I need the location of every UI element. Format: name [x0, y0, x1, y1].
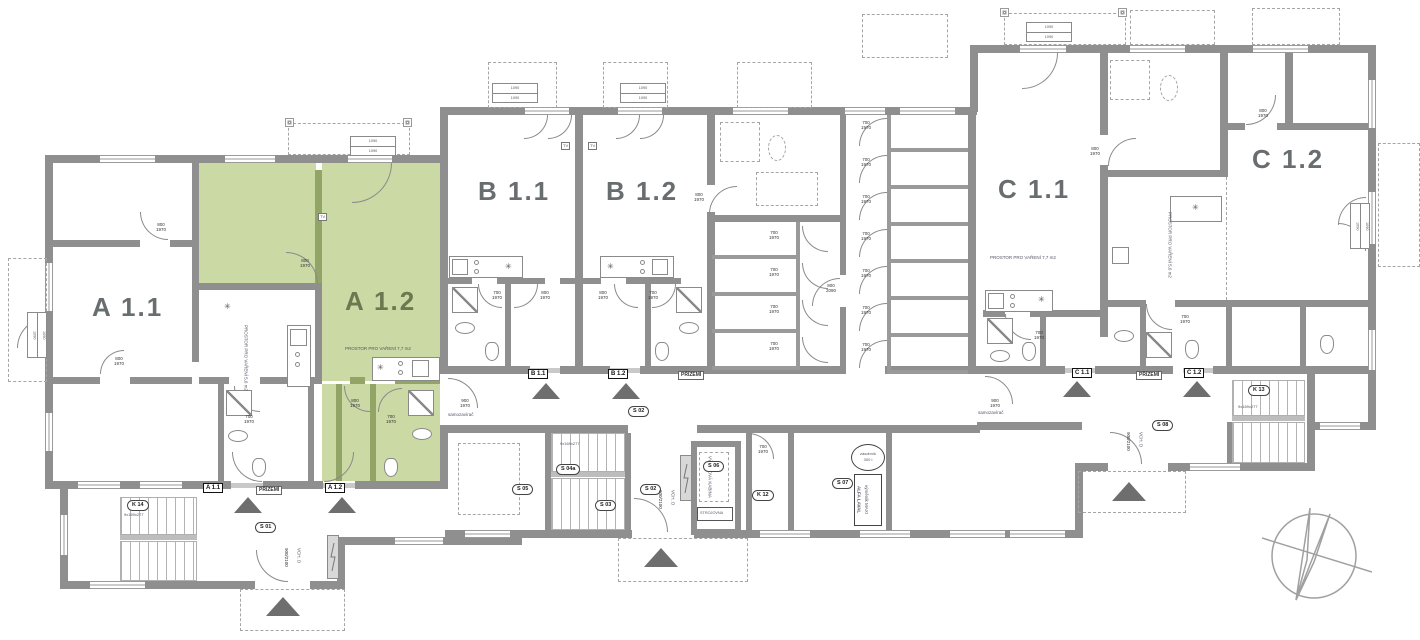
window-tag-box: 1090 1090 — [1026, 22, 1072, 42]
door-dim: 7001970 — [852, 231, 880, 241]
wall — [735, 441, 741, 535]
window — [395, 537, 443, 545]
storage-door-arc — [802, 300, 828, 326]
wall — [697, 425, 980, 433]
entrance-arrow-icon — [234, 497, 262, 513]
window-tag: 1090 — [1027, 23, 1071, 33]
toilet — [1022, 342, 1036, 361]
shower — [226, 390, 252, 416]
dim-h: 1970 — [852, 347, 880, 352]
dim-h: 1970 — [292, 263, 318, 268]
entry-door-dim: 900/2100 — [284, 548, 289, 567]
entrance-tag-b11: B 1.1 — [528, 369, 548, 379]
dim-h: 2100 — [658, 499, 663, 509]
door-dim: 8001970 — [532, 290, 558, 300]
entry-door-note: VCH. D — [296, 548, 302, 578]
staircase-landing — [120, 535, 197, 540]
wall — [440, 107, 448, 374]
staircase-k13-flight — [1232, 380, 1305, 416]
tv-outlet-label: TV — [588, 142, 597, 150]
equipment-outline — [1160, 75, 1178, 101]
stove-icon: ✳ — [607, 263, 614, 271]
window — [1368, 330, 1376, 370]
wall — [1228, 123, 1245, 130]
door-dim: 8001970 — [292, 258, 318, 268]
window-tag: 1090 — [1361, 204, 1370, 248]
window — [45, 413, 53, 451]
kitchen-sink — [1112, 247, 1129, 264]
hob-burner — [474, 269, 479, 274]
dim-h: 1970 — [236, 419, 262, 424]
wall — [350, 377, 365, 384]
window — [950, 530, 1005, 538]
wall — [788, 433, 794, 530]
door-arc — [709, 186, 737, 214]
window — [60, 515, 68, 555]
door-dim: 7001970 — [760, 341, 788, 351]
kitchen-sink — [988, 293, 1004, 309]
dim-w: 900 — [658, 490, 663, 498]
wall — [315, 283, 322, 384]
cooking-area-note: PROSTOR PRO VAŘENÍ 5,6 m2 — [1167, 212, 1173, 272]
entry-door-note: VCH. D — [1138, 432, 1144, 462]
door-dim: 8001970 — [1082, 146, 1108, 156]
cooking-area-note: PROSTOR PRO VAŘENÍ 5,6 m2 — [243, 325, 249, 385]
shower — [676, 287, 702, 313]
window — [900, 107, 955, 115]
window — [1368, 80, 1376, 128]
door-dim: 8001970 — [590, 290, 616, 300]
sink — [679, 322, 699, 334]
dim-h: 1970 — [452, 403, 478, 408]
wall — [370, 384, 376, 481]
window-tag: 1090 — [1027, 33, 1071, 42]
door-dim: 7001970 — [1172, 314, 1198, 324]
entry-door-dim: 900/2100 — [1126, 432, 1131, 451]
door-dim: 7001970 — [852, 157, 880, 167]
dim-w: 900 — [284, 548, 289, 556]
window-tag-box: 1090 1090 — [492, 83, 538, 103]
self-closer-note: samozavírač — [978, 410, 1004, 416]
window — [140, 481, 182, 489]
entrance-arrow-icon — [328, 497, 356, 513]
dim-h: 1970 — [1082, 151, 1108, 156]
dim-h: 1970 — [1026, 335, 1052, 340]
wall — [199, 377, 229, 384]
wall — [1213, 366, 1376, 374]
balcony-anchor — [1118, 8, 1127, 17]
window-tag-box: 1090 1090 — [1350, 203, 1370, 249]
wall — [691, 529, 741, 535]
entry-door-dim: 900/2100 — [658, 490, 663, 509]
dim-h: 2100 — [284, 557, 289, 567]
wall — [1100, 165, 1108, 337]
tv-outlet-label: TV — [561, 142, 570, 150]
wall — [970, 45, 978, 112]
window — [1320, 422, 1360, 430]
wall — [53, 240, 140, 247]
floor-tag: PŘÍZEMÍ — [678, 371, 704, 380]
toilet — [1185, 340, 1199, 359]
cooking-area-note: PROSTOR PRO VAŘENÍ 7,7 m2 — [345, 346, 411, 352]
dim-h: 1970 — [148, 227, 174, 232]
exchanger-box: ALFA LAVAL výměník MAXI — [854, 474, 882, 526]
balcony-outline — [1252, 8, 1340, 45]
entrance-arrow-icon — [1063, 381, 1091, 397]
door-dim: 8002090 — [818, 283, 844, 293]
entrance-tag-c11: C 1.1 — [1072, 368, 1092, 378]
entrance-arrow-icon — [612, 383, 640, 399]
wall — [53, 377, 100, 384]
cooking-area-note: PROSTOR PRO VAŘENÍ 7,7 m2 — [990, 255, 1056, 261]
door-dim: 8001970 — [106, 356, 132, 366]
door-dim: 7001970 — [236, 414, 262, 424]
dim-h: 1970 — [852, 125, 880, 130]
french-door — [348, 155, 392, 163]
dim-h: 1970 — [852, 162, 880, 167]
wall — [715, 215, 840, 222]
wall — [707, 115, 715, 185]
window-tag: 1090 — [1351, 204, 1361, 248]
room-code-s04a: S 04a — [556, 464, 580, 475]
window — [525, 107, 569, 115]
tv-outlet-label: TV — [318, 213, 327, 221]
tech-equipment-outline — [768, 135, 786, 161]
dim-h: 1970 — [852, 199, 880, 204]
door-dim: 7001970 — [852, 268, 880, 278]
door-dim: 7001970 — [640, 290, 666, 300]
room-code-k13: K 13 — [1248, 385, 1270, 396]
window — [78, 481, 120, 489]
hob-burner — [640, 269, 645, 274]
window — [1190, 463, 1240, 471]
floor-plan: VÝTAHOVÁ KABINA STROJOVNA — [0, 0, 1420, 640]
window-tag: 1090 — [493, 84, 537, 94]
stove-icon: ✳ — [1038, 296, 1045, 304]
wall — [308, 384, 314, 481]
staircase-landing — [1232, 416, 1305, 421]
wall — [1300, 300, 1306, 366]
tank-line2: 300 l — [852, 457, 884, 463]
shower — [1146, 332, 1172, 358]
window — [733, 107, 788, 115]
window-tag: 1090 — [621, 94, 665, 103]
exchanger-line1: ALFA LAVAL — [856, 486, 862, 513]
wall — [447, 278, 472, 284]
balcony-anchor — [1000, 8, 1009, 17]
storage-cells-block — [887, 115, 968, 374]
canopy-outline — [618, 538, 748, 582]
tech-equipment-outline — [720, 122, 760, 162]
door-dim: 7001970 — [852, 194, 880, 204]
dim-h: 1970 — [590, 295, 616, 300]
door-dim: 8001970 — [148, 222, 174, 232]
toilet — [655, 342, 669, 361]
stair-spec-note: 9x169x277 — [560, 441, 580, 447]
wall — [625, 433, 631, 537]
stove-icon: ✳ — [224, 303, 231, 311]
wall — [170, 240, 193, 247]
sink — [1114, 330, 1134, 342]
door-dim: 7001970 — [1026, 330, 1052, 340]
sink — [228, 430, 248, 442]
kitchen-sink — [412, 360, 429, 377]
entrance-arrow-icon — [644, 548, 678, 567]
kitchen-sink — [290, 329, 307, 346]
toilet — [485, 342, 499, 361]
window-tag-box: 1090 1090 — [620, 83, 666, 103]
open-plan-divider — [1226, 177, 1227, 300]
entrance-tag-a12: A 1.2 — [325, 483, 345, 493]
sink — [412, 428, 432, 440]
dim-h: 1970 — [760, 235, 788, 240]
electrical-panel — [327, 535, 339, 579]
wall — [130, 377, 192, 384]
exchanger-line2: výměník MAXI — [864, 485, 870, 514]
dim-h: 1970 — [106, 361, 132, 366]
wall — [968, 112, 976, 374]
door-dim: 7001970 — [852, 305, 880, 315]
wall — [1277, 123, 1368, 130]
sink — [455, 322, 475, 334]
window — [225, 155, 275, 163]
dim-h: 1970 — [750, 449, 776, 454]
door-dim: 7001970 — [852, 120, 880, 130]
window — [1253, 45, 1308, 53]
door-dim: 9001970 — [452, 398, 478, 408]
wall — [1226, 300, 1232, 366]
balcony-anchor — [285, 118, 294, 127]
wall — [575, 115, 583, 366]
room-code-k12: K 12 — [752, 490, 774, 501]
window-tag-box: 1090 1090 — [27, 312, 47, 358]
wall — [840, 115, 846, 275]
wall — [583, 278, 601, 284]
window-tag: 1090 — [351, 137, 395, 147]
wall — [447, 366, 530, 374]
wall — [1307, 374, 1315, 471]
hob-burner — [474, 260, 479, 265]
stove-icon: ✳ — [505, 263, 512, 271]
window — [860, 530, 910, 538]
dim-h: 1970 — [640, 295, 666, 300]
wall — [1083, 463, 1108, 471]
window-tag-box: 1090 1090 — [350, 136, 396, 156]
wall — [977, 366, 1065, 374]
room-code-s08: S 08 — [1152, 420, 1173, 431]
door-dim: 9001970 — [982, 398, 1008, 408]
wall — [560, 278, 575, 284]
stair-spec-note: 9x169x277 — [1238, 404, 1258, 410]
dim-h: 1970 — [852, 273, 880, 278]
room-code-s01: S 01 — [255, 522, 276, 533]
floor-tag: PŘÍZEMÍ — [256, 486, 282, 495]
window — [465, 530, 510, 538]
dim-h: 2090 — [818, 288, 844, 293]
dim-h: 1970 — [982, 403, 1008, 408]
unit-label-a11: A 1.1 — [92, 294, 163, 320]
north-compass-icon — [1262, 498, 1372, 610]
storage-door-arc — [802, 226, 828, 252]
wall — [1100, 170, 1228, 177]
room-code-s02: S 02 — [628, 406, 649, 417]
dim-h: 1970 — [342, 403, 368, 408]
entrance-tag-c12: C 1.2 — [1184, 368, 1204, 378]
dim-h: 1970 — [760, 309, 788, 314]
wall — [199, 283, 316, 290]
window — [1130, 45, 1185, 53]
wall — [691, 441, 741, 447]
dim-h: 1970 — [760, 272, 788, 277]
elevator-cabin-outline — [699, 452, 729, 502]
shower — [408, 390, 434, 416]
dim-h: 1970 — [378, 419, 404, 424]
toilet — [252, 458, 266, 477]
door-dim: 7001970 — [852, 342, 880, 352]
staircase-k13-flight — [1232, 422, 1305, 463]
dim-h: 1970 — [686, 197, 712, 202]
window — [100, 155, 155, 163]
dim-h: 2100 — [1126, 441, 1131, 451]
floor-tag: PŘÍZEMÍ — [1136, 371, 1162, 380]
dim-h: 1970 — [1172, 319, 1198, 324]
unit-label-c11: C 1.1 — [998, 176, 1070, 202]
dim-w: 900 — [1126, 432, 1131, 440]
self-closer-note: samozavírač — [448, 412, 474, 418]
storage-door-arc — [802, 337, 828, 363]
door-dim: 7001970 — [760, 304, 788, 314]
staircase-k14-flight — [120, 541, 197, 581]
wall — [886, 433, 892, 530]
room-code-s06: S 06 — [703, 461, 724, 472]
hob-burner — [398, 361, 403, 366]
balcony-anchor — [403, 118, 412, 127]
dim-h: 1970 — [852, 236, 880, 241]
door-dim: 7001970 — [484, 290, 510, 300]
window — [845, 107, 885, 115]
hob-burner — [640, 260, 645, 265]
window — [90, 581, 145, 589]
toilet — [1320, 335, 1334, 354]
window — [760, 530, 810, 538]
tank-circle: zásobník 300 l — [851, 444, 885, 471]
room-code-s07: S 07 — [832, 478, 853, 489]
window-tag: 1090 — [621, 84, 665, 94]
window — [1010, 530, 1065, 538]
door-dim: 8001970 — [342, 398, 368, 408]
unit-label-c12: C 1.2 — [1252, 146, 1324, 172]
room-code-s03: S 03 — [595, 500, 616, 511]
balcony-outline — [1378, 143, 1420, 267]
dim-h: 1970 — [760, 346, 788, 351]
wall — [1175, 300, 1368, 307]
hob-burner — [1010, 294, 1015, 299]
sink — [990, 350, 1010, 362]
window-tag: 1090 — [351, 147, 395, 156]
window-tag: 1090 — [28, 313, 38, 357]
entrance-tag-a11: A 1.1 — [203, 483, 223, 493]
toilet — [384, 458, 398, 477]
wall — [1285, 53, 1293, 130]
wall — [1220, 53, 1228, 177]
entrance-arrow-icon — [532, 383, 560, 399]
door-dim: 8001970 — [1250, 108, 1276, 118]
balcony-outline — [737, 62, 812, 108]
window-tag: 1090 — [38, 313, 47, 357]
stove-icon: ✳ — [377, 364, 384, 372]
electrical-panel — [680, 455, 692, 501]
window-tag: 1090 — [493, 94, 537, 103]
stair-spec-note: 9x169x277 — [124, 512, 144, 518]
window — [1020, 45, 1066, 53]
balcony-outline — [862, 14, 948, 58]
wall — [355, 481, 447, 489]
hob-burner — [398, 370, 403, 375]
hob-burner — [1010, 303, 1015, 308]
entrance-arrow-icon — [1112, 482, 1146, 501]
entrance-arrow-icon — [1183, 381, 1211, 397]
wall — [560, 366, 610, 374]
balcony-outline — [1130, 10, 1215, 45]
entry-door-note: VCH. D — [670, 490, 676, 520]
wall — [977, 422, 1082, 430]
window — [618, 107, 662, 115]
wall — [445, 425, 628, 433]
dim-h: 1970 — [532, 295, 558, 300]
shower — [452, 287, 478, 313]
tech-equipment-outline — [756, 172, 818, 206]
wall — [218, 384, 224, 481]
door-dim: 7001970 — [378, 414, 404, 424]
door-dim: 7001970 — [760, 230, 788, 240]
shower — [987, 318, 1013, 344]
hob-burner — [295, 352, 300, 357]
kitchen-sink — [452, 259, 468, 275]
room-code-k14: K 14 — [127, 500, 149, 511]
hob-burner — [295, 362, 300, 367]
door-dim: 7001970 — [760, 267, 788, 277]
unit-label-b11: B 1.1 — [478, 178, 550, 204]
unit-label-b12: B 1.2 — [606, 178, 678, 204]
wall — [840, 307, 846, 374]
dim-h: 1970 — [852, 310, 880, 315]
kitchen-sink — [652, 259, 668, 275]
door-dim: 7001970 — [750, 444, 776, 454]
dim-h: 1970 — [484, 295, 510, 300]
wall — [440, 425, 448, 489]
equipment-outline — [1110, 60, 1150, 100]
unit-a11-region[interactable] — [53, 163, 192, 481]
stove-icon: ✳ — [1192, 204, 1199, 212]
door-dim: 8001970 — [686, 192, 712, 202]
room-s05-outline — [458, 443, 520, 515]
wall — [1100, 53, 1108, 135]
unit-label-a12: A 1.2 — [345, 288, 416, 314]
room-code-s05: S 05 — [512, 484, 533, 495]
machine-room-label: STROJOVNA — [700, 511, 723, 517]
dim-h: 1970 — [1250, 113, 1276, 118]
entrance-arrow-icon — [266, 597, 300, 616]
entrance-tag-b12: B 1.2 — [608, 369, 628, 379]
wall — [192, 163, 199, 362]
